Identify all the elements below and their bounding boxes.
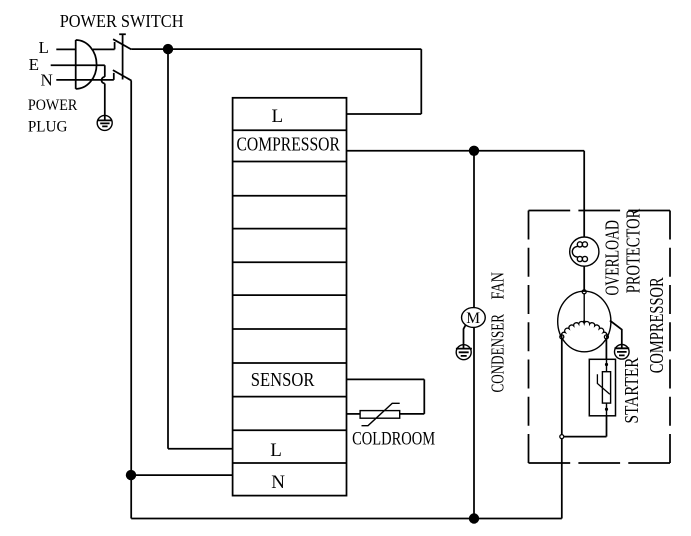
svg-text:COMPRESSOR: COMPRESSOR — [237, 133, 341, 155]
svg-text:PROTECTOR: PROTECTOR — [623, 209, 644, 294]
svg-text:OVERLOAD: OVERLOAD — [602, 220, 623, 295]
svg-text:POWER SWITCH: POWER SWITCH — [60, 11, 184, 31]
svg-text:M: M — [466, 310, 480, 327]
svg-text:CONDENSER: CONDENSER — [487, 314, 507, 393]
svg-text:COMPRESSOR: COMPRESSOR — [647, 277, 668, 373]
svg-text:L: L — [270, 440, 282, 461]
svg-text:SENSOR: SENSOR — [251, 369, 315, 391]
svg-text:L: L — [39, 38, 49, 57]
svg-text:PLUG: PLUG — [28, 118, 68, 135]
svg-text:FAN: FAN — [487, 272, 507, 300]
svg-text:N: N — [271, 472, 285, 493]
svg-text:L: L — [272, 106, 284, 127]
svg-text:POWER: POWER — [28, 97, 78, 114]
svg-text:N: N — [41, 70, 53, 89]
svg-text:STARTER: STARTER — [622, 358, 643, 424]
svg-text:E: E — [29, 55, 39, 74]
svg-text:COLDROOM: COLDROOM — [352, 429, 435, 449]
